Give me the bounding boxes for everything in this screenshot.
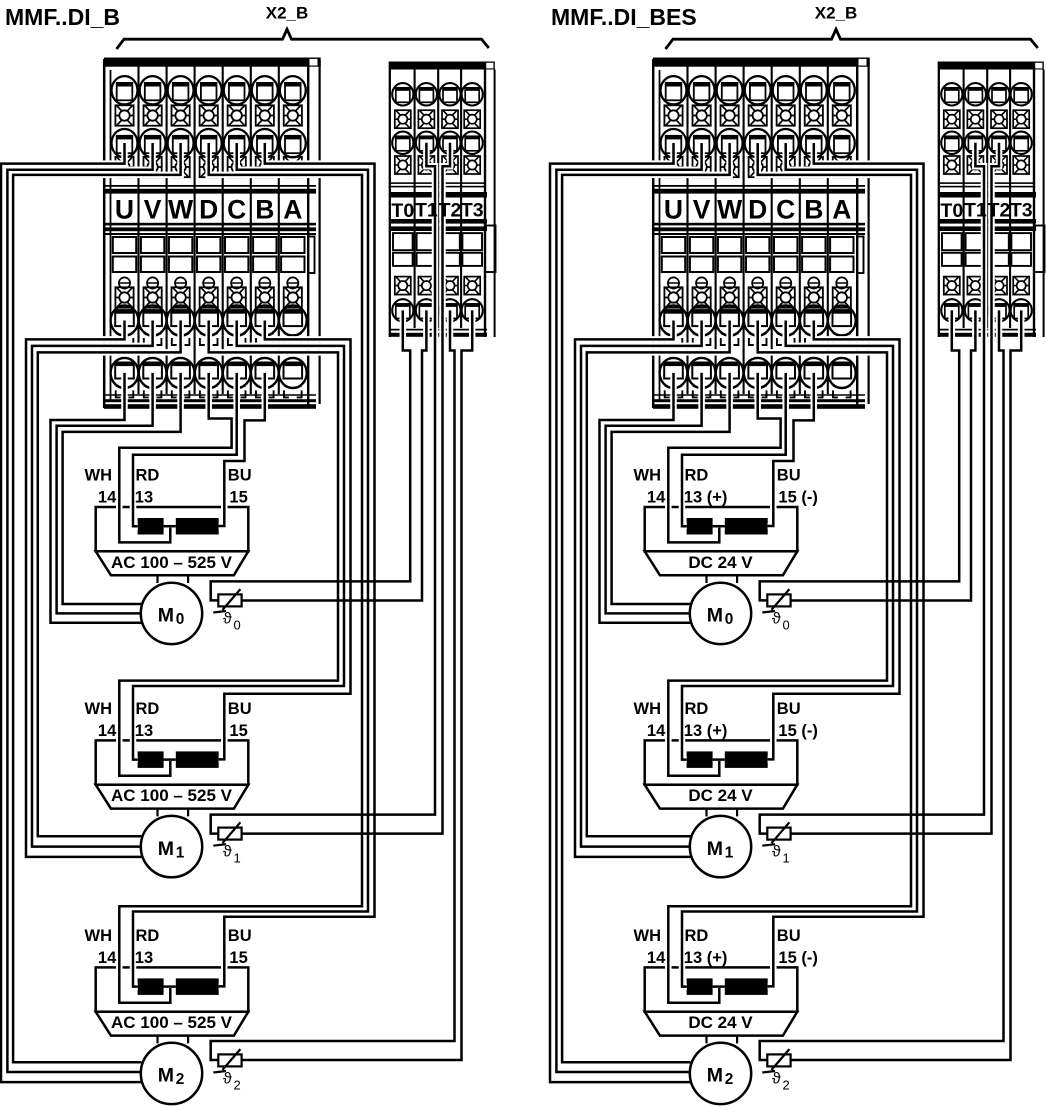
svg-text:X2_B: X2_B xyxy=(266,4,309,23)
svg-text:T3: T3 xyxy=(461,200,484,222)
svg-text:BU: BU xyxy=(228,466,252,484)
svg-text:WH: WH xyxy=(85,700,113,718)
svg-text:15 (-): 15 (-) xyxy=(778,722,817,740)
svg-text:V: V xyxy=(144,195,162,225)
svg-text:AC 100 – 525 V: AC 100 – 525 V xyxy=(111,786,233,805)
svg-text:0: 0 xyxy=(234,617,241,632)
svg-text:13 (+): 13 (+) xyxy=(684,488,728,506)
svg-text:13 (+): 13 (+) xyxy=(684,949,728,967)
svg-text:U: U xyxy=(115,195,134,225)
svg-text:14: 14 xyxy=(98,949,117,967)
svg-text:WH: WH xyxy=(85,927,113,945)
svg-text:WH: WH xyxy=(85,466,113,484)
svg-text:AC 100 – 525 V: AC 100 – 525 V xyxy=(111,1013,233,1032)
svg-text:14: 14 xyxy=(98,488,117,506)
svg-text:15 (-): 15 (-) xyxy=(778,488,817,506)
svg-text:MMF..DI_B: MMF..DI_B xyxy=(5,4,120,30)
svg-text:RD: RD xyxy=(136,700,160,718)
svg-text:2: 2 xyxy=(234,1077,241,1092)
svg-text:RD: RD xyxy=(136,927,160,945)
svg-text:13: 13 xyxy=(135,488,153,506)
svg-text:2: 2 xyxy=(176,1071,185,1088)
svg-text:M: M xyxy=(158,605,174,627)
svg-text:M: M xyxy=(158,838,174,860)
svg-text:ϑ: ϑ xyxy=(223,610,232,627)
svg-text:1: 1 xyxy=(234,851,241,866)
svg-text:ϑ: ϑ xyxy=(223,844,232,861)
svg-text:15 (-): 15 (-) xyxy=(778,949,817,967)
svg-text:MMF..DI_BES: MMF..DI_BES xyxy=(551,4,697,30)
svg-text:T2: T2 xyxy=(439,200,462,222)
svg-text:A: A xyxy=(283,195,302,225)
svg-text:15: 15 xyxy=(229,722,247,740)
svg-text:1: 1 xyxy=(176,844,185,861)
svg-text:M: M xyxy=(158,1065,174,1087)
svg-text:15: 15 xyxy=(229,949,247,967)
svg-text:AC 100 – 525 V: AC 100 – 525 V xyxy=(111,553,233,572)
svg-text:BU: BU xyxy=(228,927,252,945)
svg-text:T0: T0 xyxy=(391,200,414,222)
svg-text:BU: BU xyxy=(228,700,252,718)
svg-text:T1: T1 xyxy=(415,200,438,222)
svg-text:DC 24 V: DC 24 V xyxy=(688,786,753,805)
svg-text:ϑ: ϑ xyxy=(223,1070,232,1087)
svg-text:DC 24 V: DC 24 V xyxy=(688,553,753,572)
svg-text:13: 13 xyxy=(135,722,153,740)
svg-text:C: C xyxy=(227,195,246,225)
svg-text:15: 15 xyxy=(229,488,247,506)
svg-text:13 (+): 13 (+) xyxy=(684,722,728,740)
svg-text:D: D xyxy=(199,195,218,225)
svg-text:B: B xyxy=(255,195,274,225)
svg-text:W: W xyxy=(168,195,193,225)
svg-text:0: 0 xyxy=(176,611,185,628)
svg-text:DC 24 V: DC 24 V xyxy=(688,1013,753,1032)
svg-text:RD: RD xyxy=(136,466,160,484)
svg-text:13: 13 xyxy=(135,949,153,967)
svg-text:14: 14 xyxy=(98,722,117,740)
